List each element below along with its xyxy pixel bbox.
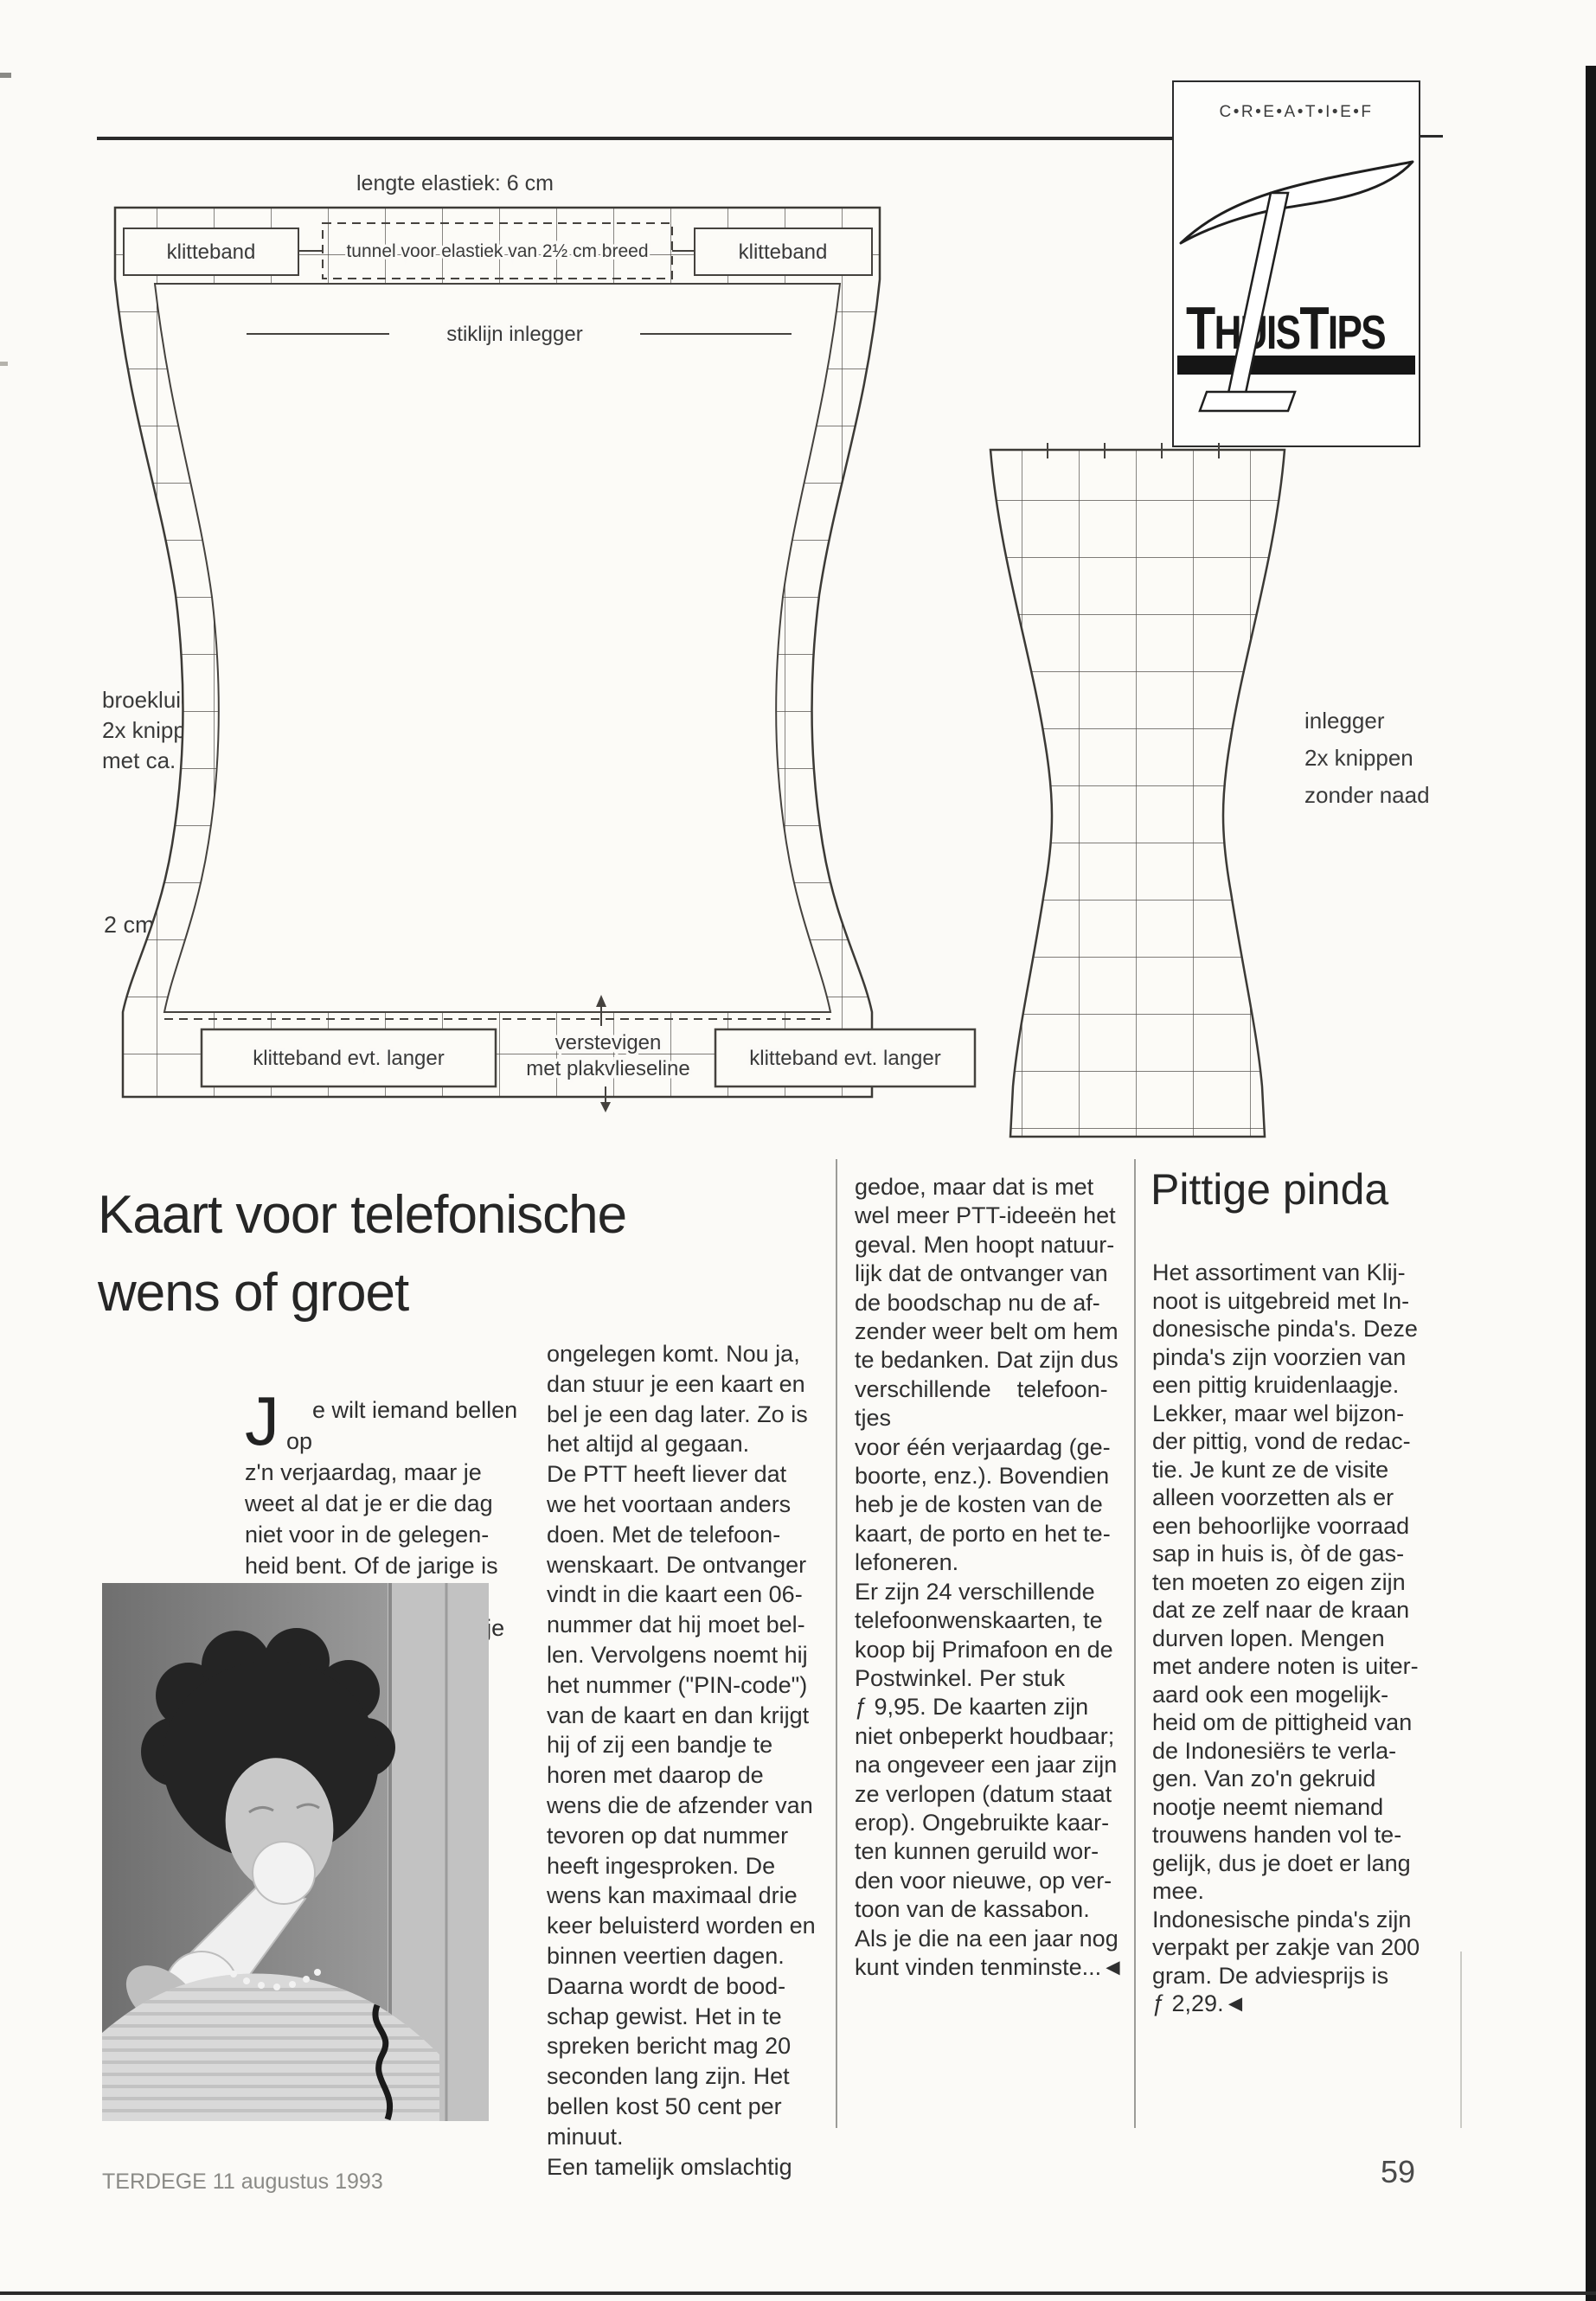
article-kaart-column-3: gedoe, maar dat is met wel meer PTT-idee… [855,1173,1131,1982]
magazine-page: C•R•E•A•T•I•E•F THUISTIPS lengte elastie… [0,0,1596,2301]
logo-wordmark: THUISTIPS [1186,295,1386,362]
column-divider [836,1159,837,2128]
creatief-label: C•R•E•A•T•I•E•F [1174,103,1419,122]
photo-woman-on-phone [102,1583,489,2121]
top-rule-tick [1420,135,1443,138]
column-divider [1460,1952,1462,2128]
pattern-diagram-inlegger [965,443,1311,1144]
page-bottom-rule [0,2291,1596,2295]
logo-swash [1181,162,1413,243]
inlegger-grid [990,450,1285,1137]
verstevigen-label: verstevigen [555,1031,662,1054]
plakvlieseline-label: met plakvlieseline [526,1057,689,1080]
logo-foot [1200,392,1295,411]
pattern-label-lengte-elastiek: lengte elastiek: 6 cm [356,171,554,196]
svg-text:THUISTIPS: THUISTIPS [1186,295,1386,362]
klitteband-bottom-right-label: klitteband evt. langer [749,1047,940,1070]
pattern-diagram-broekluier: klitteband tunnel voor elastiek van 2½ c… [99,197,982,1114]
page-number: 59 [1381,2154,1415,2190]
article-pinda-body: Het assortiment van Klij- noot is uitgeb… [1152,1259,1451,2018]
footer-magazine-date: TERDEGE 11 augustus 1993 [102,2170,383,2195]
article-title-kaart: Kaart voor telefonische wens of groet [98,1176,807,1332]
thuistips-logo: THUISTIPS [1174,132,1419,426]
scan-mark [0,362,8,366]
klitteband-bottom-left-label: klitteband evt. langer [253,1047,444,1070]
column-divider [1134,1159,1136,2128]
broekluier-inner-panel [155,284,840,1012]
article-kaart-column-2: ongelegen komt. Nou ja, dan stuur je een… [547,1339,836,2182]
arrow-down-head [600,1102,611,1112]
scan-mark [0,73,11,78]
logo-bar [1177,356,1415,375]
page-edge-shadow [1586,66,1596,2301]
klitteband-top-left-label: klitteband [167,240,256,264]
article-title-pinda: Pittige pinda [1151,1164,1388,1215]
drop-cap: J [245,1396,279,1446]
pattern-note-inlegger: inlegger 2x knippen zonder naad [1304,702,1430,814]
top-rule [97,137,1172,140]
thuistips-logo-box: C•R•E•A•T•I•E•F THUISTIPS [1172,80,1420,447]
klitteband-top-right-label: klitteband [739,240,828,264]
tunnel-breed-label: tunnel voor elastiek van 2½ cm breed [346,241,648,261]
stiklijn-label: stiklijn inlegger [446,323,582,346]
